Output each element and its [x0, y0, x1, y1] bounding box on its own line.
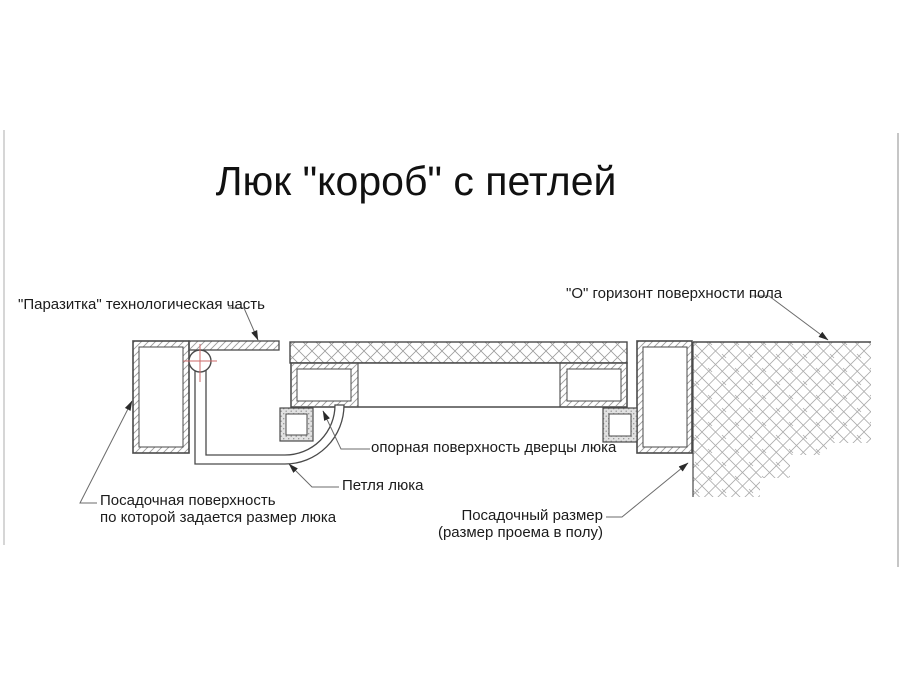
page-title: Люк "короб" с петлей: [0, 158, 832, 205]
right-frame: [637, 341, 692, 453]
leader-seating-surface: [80, 401, 132, 503]
label-horizon: "О" горизонт поверхности пола: [566, 286, 782, 303]
label-parasitka: "Паразитка" технологическая часть: [18, 297, 265, 314]
label-seating-size-line1: Посадочный размер: [430, 508, 603, 525]
label-hinge: Петля люка: [342, 478, 423, 495]
label-seating-surface-line2: по которой задается размер люка: [100, 510, 336, 527]
hinge-block-right: [603, 408, 637, 442]
left-frame: [133, 341, 189, 453]
label-support-surface: опорная поверхность дверцы люка: [371, 440, 616, 457]
hatch-door: [290, 342, 627, 407]
label-seating-size-line2: (размер проема в полу): [430, 525, 603, 542]
label-seating-surface-line1: Посадочная поверхность: [100, 493, 336, 510]
technical-drawing: [0, 0, 900, 700]
label-seating-size: Посадочный размер (размер проема в полу): [430, 508, 603, 541]
floor-mass: [693, 342, 871, 497]
diagram-page: Люк "короб" с петлей "Паразитка" техноло…: [0, 0, 900, 700]
leader-seating-size: [606, 463, 688, 517]
hinge-block-left: [280, 408, 313, 441]
parasitka-bar: [189, 341, 279, 350]
label-seating-surface: Посадочная поверхность по которой задает…: [100, 493, 336, 526]
leader-hinge: [289, 464, 339, 487]
door-lid: [290, 342, 627, 363]
leader-horizon: [750, 296, 828, 340]
